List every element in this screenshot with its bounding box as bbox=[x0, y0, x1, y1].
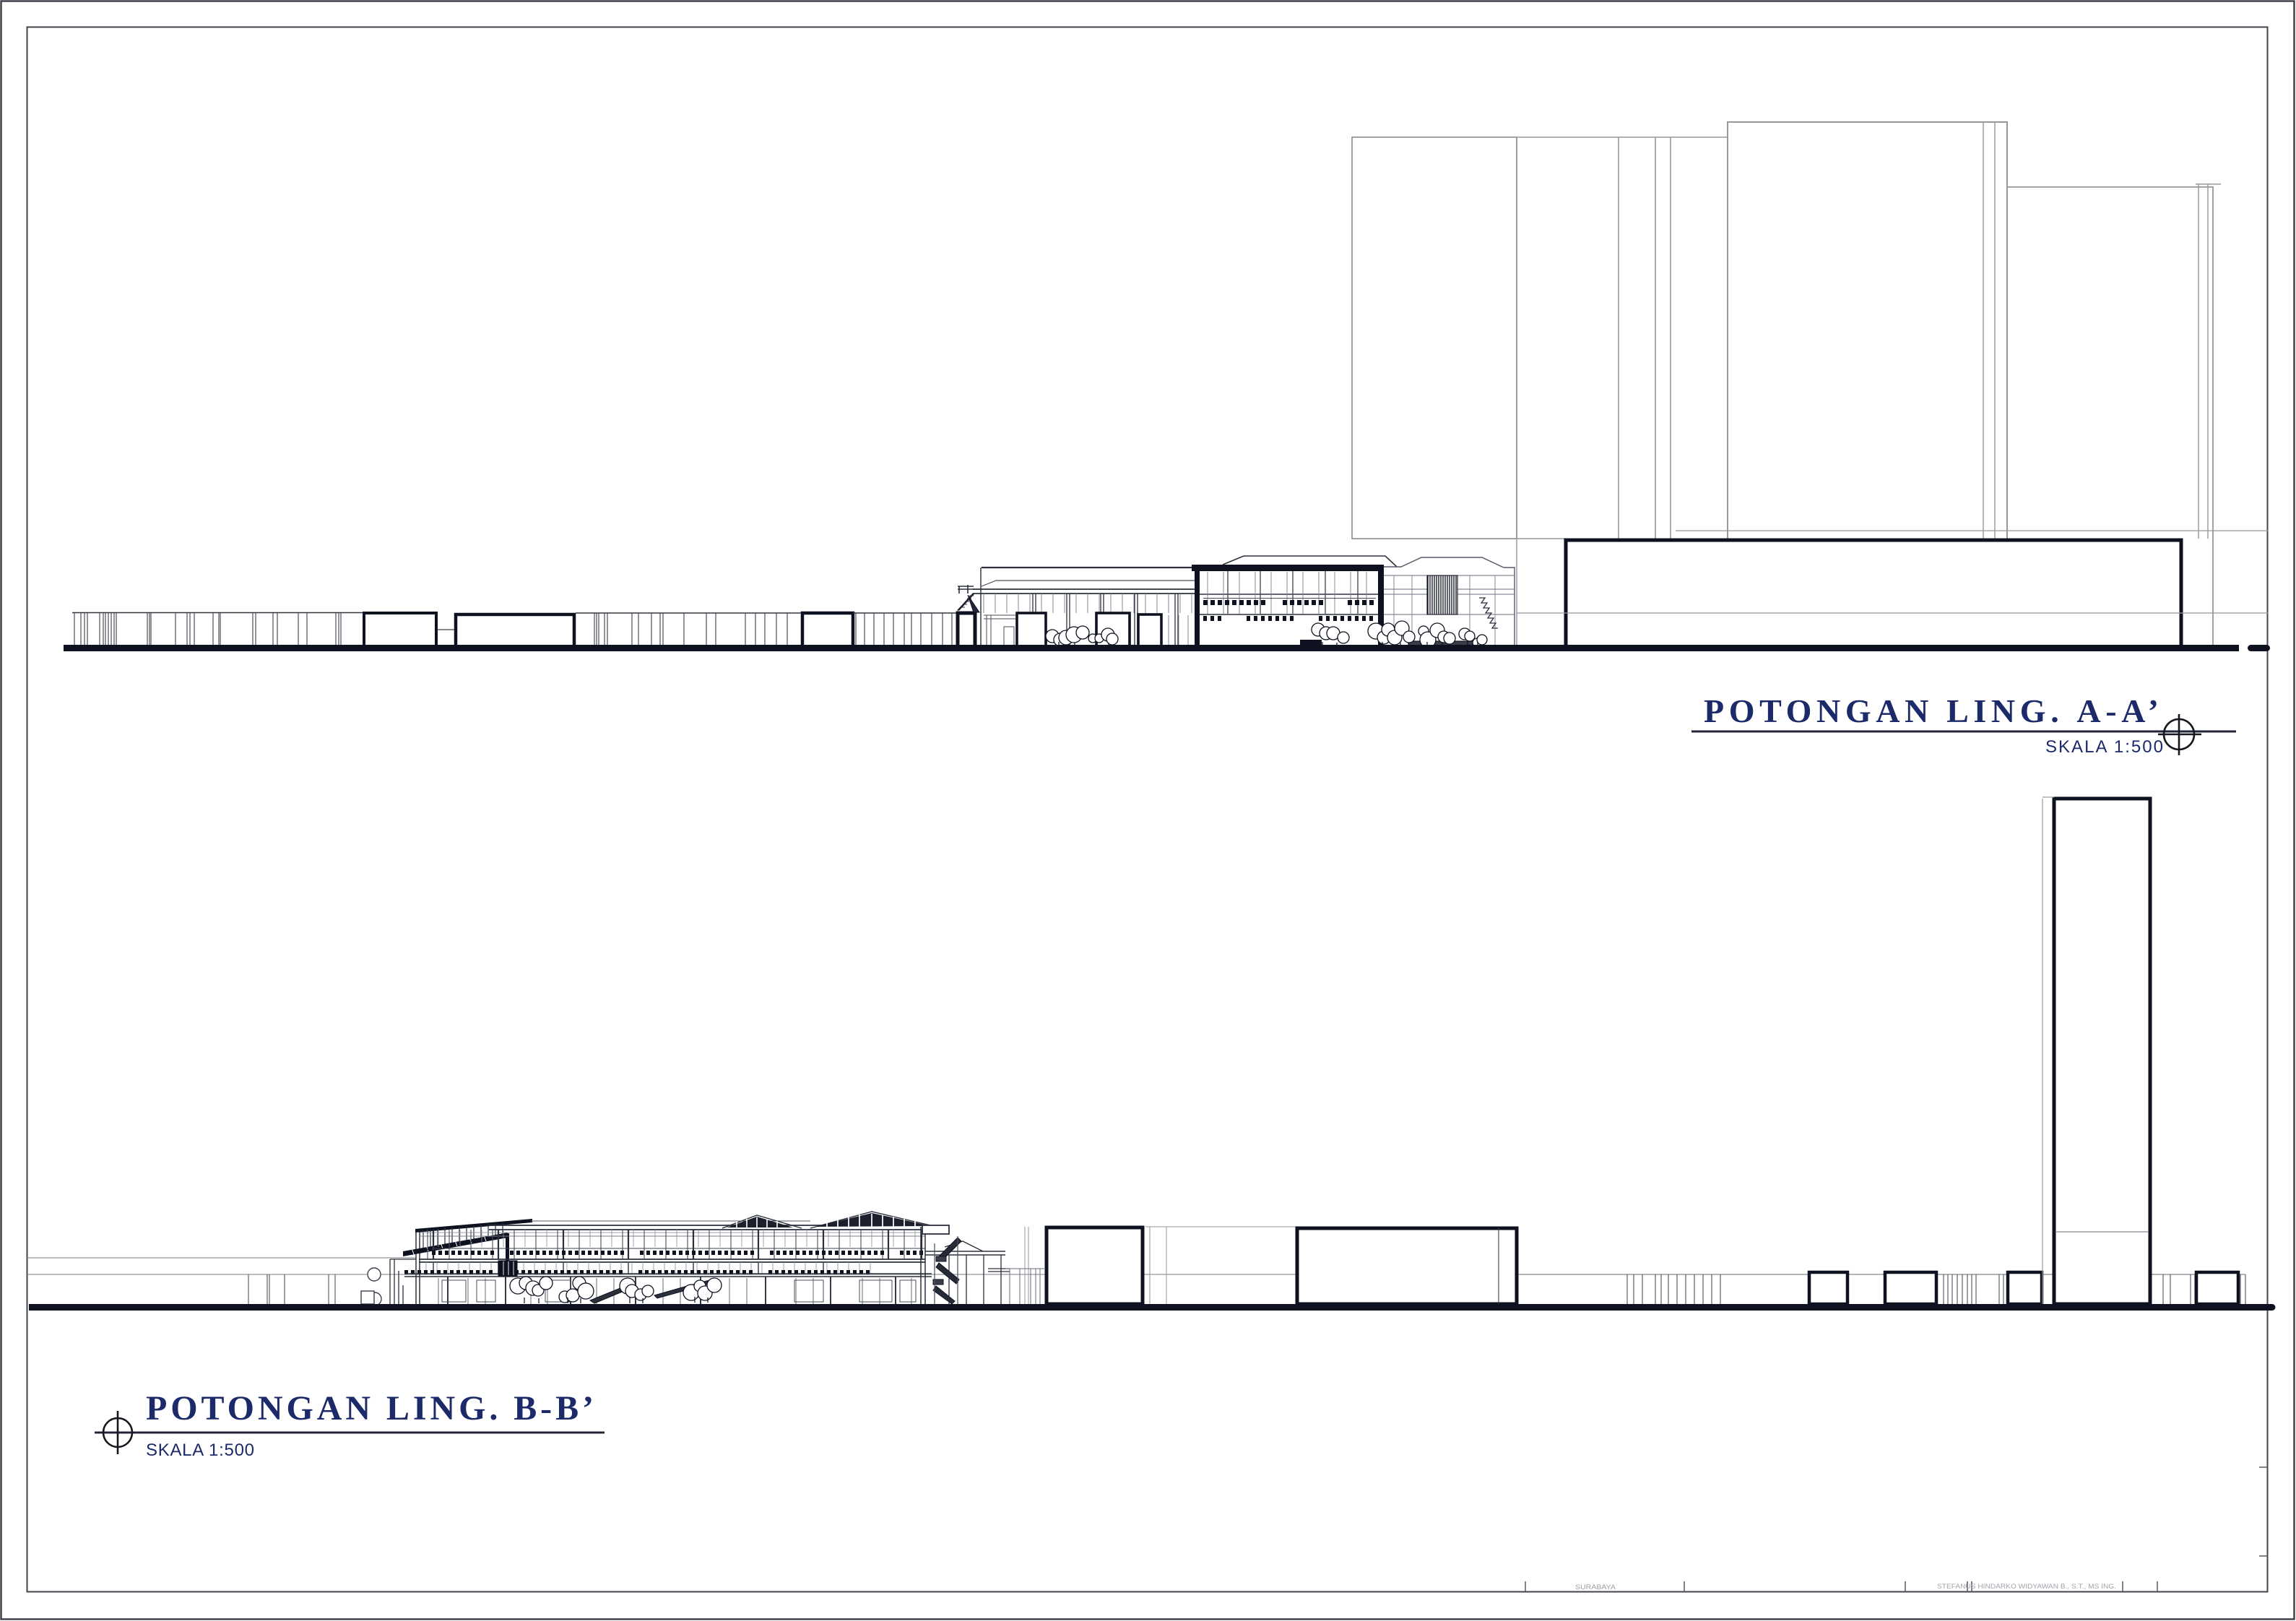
svg-text:POTONGAN LING. B-B’: POTONGAN LING. B-B’ bbox=[146, 1389, 594, 1427]
svg-text:SKALA 1:500: SKALA 1:500 bbox=[146, 1440, 254, 1460]
svg-text:POTONGAN LING. A-A’: POTONGAN LING. A-A’ bbox=[1704, 692, 2159, 729]
svg-text:SKALA 1:500: SKALA 1:500 bbox=[2045, 737, 2163, 757]
svg-text:SURABAYA: SURABAYA bbox=[1575, 1583, 1616, 1591]
svg-text:STEFANUS HINDARKO WIDYAWAN B.,: STEFANUS HINDARKO WIDYAWAN B., S.T., MS … bbox=[1937, 1583, 2116, 1590]
